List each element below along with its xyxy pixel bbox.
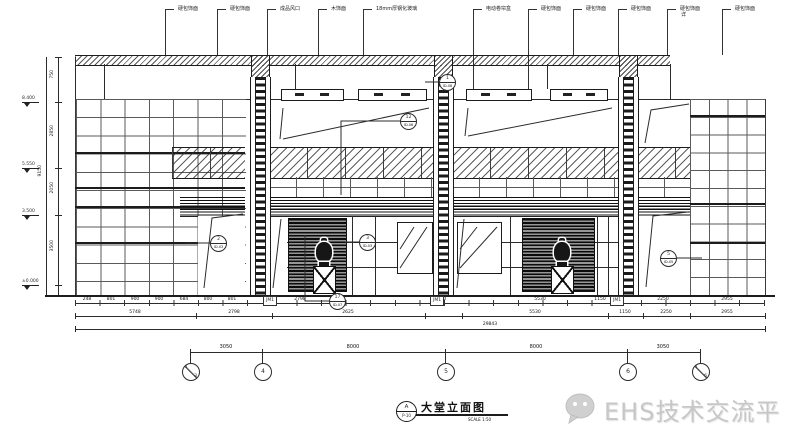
ceiling-hatch-band	[75, 55, 670, 66]
ceiling-end-line	[670, 64, 671, 99]
axis-bubble-label: 5	[444, 368, 448, 375]
detail-sheet-ref: ID-08	[440, 83, 455, 89]
detail-sheet-ref: ID-03	[211, 244, 226, 250]
material-callout: 硬包饰面	[528, 6, 561, 12]
left-dim-value: 2850	[50, 125, 55, 136]
door-tag: JM1	[263, 296, 277, 306]
sculpture-pedestal	[551, 266, 574, 294]
vase-sculpture	[316, 242, 332, 262]
door-tag-label: JM1	[613, 298, 621, 303]
dim-chain-line	[75, 316, 765, 317]
door-tag: JM1	[610, 296, 624, 306]
wall-joint-line	[608, 216, 609, 295]
dim-tick	[196, 313, 197, 319]
axis-grid-bubble: 4	[254, 363, 272, 381]
drawing-ref-bubble: AP-10	[396, 401, 417, 422]
detail-bubble: 12ID-06	[400, 113, 417, 130]
ceiling-beam-block	[619, 55, 638, 78]
material-callout: 硬包饰面	[573, 6, 606, 12]
grid-heavy-line	[690, 203, 765, 205]
axis-stem	[262, 352, 263, 363]
transom-band	[452, 177, 618, 198]
level-triangle-icon	[24, 169, 30, 173]
left-dim-value: 3500	[50, 240, 55, 251]
axis-grid-bubble: 5	[437, 363, 455, 381]
transom-band	[269, 177, 433, 198]
dim-tick	[272, 313, 273, 319]
axis-span-value: 8000	[338, 345, 368, 350]
decorative-column	[250, 77, 271, 295]
level-value: 8.400	[22, 96, 35, 101]
axis-grid-bubble: 6	[619, 363, 637, 381]
detail-bubble: 3ID-03	[359, 234, 376, 251]
axis-stem	[445, 352, 446, 363]
detail-number: 5	[661, 251, 676, 259]
level-marker: 3.500	[22, 215, 62, 225]
canopy-box	[358, 89, 427, 101]
wall-joint-line	[510, 216, 511, 295]
dim-tick	[75, 326, 76, 332]
louver-band	[452, 197, 618, 217]
axis-bubble-label: 1	[695, 365, 698, 370]
callout-label: 硬包饰面	[631, 6, 651, 12]
dim-value: 2625	[333, 310, 363, 315]
detail-bubble: 5ID-05	[660, 250, 677, 267]
decorative-column	[618, 77, 639, 295]
callout-label: 木饰面	[331, 6, 346, 12]
title-underline	[416, 414, 508, 416]
detail-sheet-ref: ID-07	[330, 302, 345, 308]
detail-sheet-ref: ID-06	[401, 122, 416, 128]
canopy-box	[281, 89, 344, 101]
level-value: 5.550	[22, 162, 35, 167]
drawing-title: 大堂立面图	[421, 399, 486, 415]
glass-door	[457, 222, 502, 274]
detail-bubble: 1ID-08	[439, 74, 456, 91]
axis-stem	[700, 352, 701, 363]
soffit-slope-line	[645, 104, 689, 143]
axis-stem	[190, 352, 191, 363]
canopy-box	[466, 89, 532, 101]
callout-label: 硬包饰面	[586, 6, 606, 12]
dim-value: 2798	[285, 297, 315, 302]
hanger-line	[104, 64, 105, 99]
sculpture-pedestal	[313, 266, 336, 294]
dim-tick	[690, 313, 691, 319]
dim-total-value: 29843	[475, 322, 505, 327]
material-callout: 木饰面	[318, 6, 346, 12]
detail-number: 3	[360, 235, 375, 243]
louver-band	[180, 197, 245, 217]
callout-label: 电动卷帘盒	[486, 6, 511, 12]
axis-grid-bubble: 16	[692, 363, 710, 381]
drawing-ref-sheet: P-10	[397, 412, 416, 420]
column-ladder-hatch	[623, 77, 634, 295]
dim-value: 2250	[651, 310, 681, 315]
dim-tick	[75, 313, 76, 319]
curtain-wall-grid-right	[690, 99, 766, 295]
level-triangle-icon	[24, 103, 30, 107]
callout-label-line2: 详	[681, 12, 686, 18]
hanger-line	[295, 64, 296, 89]
door-tag-label: JM1	[433, 298, 441, 303]
wechat-icon	[563, 392, 599, 426]
hanger-line	[547, 64, 548, 89]
elevation-drawing-sheet: 硬包饰面 硬包饰面 成品风口 木饰面 18mm厚钢化玻璃 电动卷帘盒 硬包饰面 …	[0, 0, 799, 433]
column-ladder-hatch	[438, 77, 449, 295]
material-callout: 硬包饰面	[165, 6, 198, 12]
dim-value: 1150	[610, 310, 640, 315]
glass-hatch-band	[269, 147, 433, 179]
transom-band	[637, 177, 690, 198]
axis-bubble-label: 6	[704, 374, 707, 379]
dim-value: 5530	[520, 310, 550, 315]
callout-label: 硬包饰面	[230, 6, 250, 12]
material-callout: 硬包饰面详	[667, 6, 700, 18]
detail-sheet-ref: ID-03	[360, 243, 375, 249]
level-value: 3.500	[22, 209, 35, 214]
axis-bubble-label: 3	[194, 374, 197, 379]
dim-value: 801	[217, 297, 247, 302]
glass-hatch-band	[452, 147, 618, 179]
wall-joint-line	[352, 216, 353, 295]
grid-heavy-line	[75, 187, 245, 189]
material-callout: 电动卷帘盒	[473, 6, 511, 12]
level-triangle-icon	[24, 216, 30, 220]
axis-span-value: 8000	[521, 345, 551, 350]
callout-label: 硬包饰面	[178, 6, 198, 12]
louver-band	[637, 197, 690, 217]
glass-hatch-band	[637, 147, 690, 179]
callout-label: 成品风口	[280, 6, 300, 12]
vase-sculpture	[554, 242, 570, 262]
axis-stem	[627, 352, 628, 363]
dim-tick	[462, 313, 463, 319]
dim-tick	[425, 313, 426, 319]
axis-bubble-label: 4	[261, 368, 265, 375]
axis-span-value: 3050	[211, 345, 241, 350]
dim-tick	[643, 313, 644, 319]
axis-span-value: 3050	[648, 345, 678, 350]
callout-label: 18mm厚钢化玻璃	[376, 6, 417, 12]
material-callout: 硬包饰面	[618, 6, 651, 12]
dim-value: 5748	[120, 310, 150, 315]
dim-value: 2798	[219, 310, 249, 315]
glass-hatch-band	[172, 147, 245, 179]
drawing-ref-letter: A	[397, 402, 416, 412]
detail-sheet-ref: ID-05	[661, 259, 676, 265]
level-value: ±0.000	[22, 279, 39, 284]
sloped-wall-panel	[198, 216, 245, 295]
wall-joint-line	[597, 216, 598, 295]
column-ladder-hatch	[255, 77, 266, 295]
detail-bubble: 17ID-07	[329, 293, 346, 310]
level-marker: 8.400	[22, 102, 62, 112]
glass-door	[397, 222, 433, 274]
door-tag-label: JM1	[266, 298, 274, 303]
left-dim-value: 750	[50, 70, 55, 79]
material-callout: 18mm厚钢化玻璃	[363, 6, 417, 12]
callout-label: 硬包饰面	[735, 6, 755, 12]
axis-grid-bubble: 13	[182, 363, 200, 381]
grid-heavy-line	[690, 115, 765, 117]
material-callout: 硬包饰面	[722, 6, 755, 12]
soffit-slope-line	[465, 108, 612, 136]
decorative-column	[433, 77, 454, 295]
level-marker: ±0.000	[22, 285, 62, 295]
level-marker: 5.550	[22, 168, 62, 178]
detail-bubble: 2ID-03	[210, 235, 227, 252]
dim-value: 2250	[648, 297, 678, 302]
watermark-text: EHS技术交流平台	[604, 392, 799, 433]
axis-bubble-label: 6	[626, 368, 630, 375]
callout-label: 硬包饰面	[541, 6, 561, 12]
detail-number: 1	[440, 75, 455, 83]
axis-bubble-label: 1	[185, 365, 188, 370]
dim-tick	[608, 313, 609, 319]
detail-number: 17	[330, 294, 345, 302]
material-callout: 硬包饰面	[217, 6, 250, 12]
dim-value: 2955	[712, 310, 742, 315]
material-callout: 成品风口	[267, 6, 300, 12]
louver-band	[269, 197, 433, 217]
drawing-scale: SCALE 1:50	[468, 417, 491, 422]
level-triangle-icon	[24, 286, 30, 290]
dim-value: 2955	[712, 297, 742, 302]
dim-tick	[765, 313, 766, 319]
detail-number: 12	[401, 114, 416, 122]
detail-number: 2	[211, 236, 226, 244]
dim-tick	[765, 326, 766, 332]
ceiling-beam-block	[251, 55, 270, 78]
dim-total-line	[75, 329, 765, 330]
canopy-box	[550, 89, 608, 101]
dim-value: 5530	[525, 297, 555, 302]
left-dim-value: 2050	[50, 182, 55, 193]
door-tag: JM1	[430, 296, 444, 306]
grid-heavy-line	[690, 242, 765, 244]
wall-joint-line	[375, 216, 376, 295]
dim-tick	[55, 57, 62, 58]
sloped-wall-panel	[269, 217, 287, 295]
